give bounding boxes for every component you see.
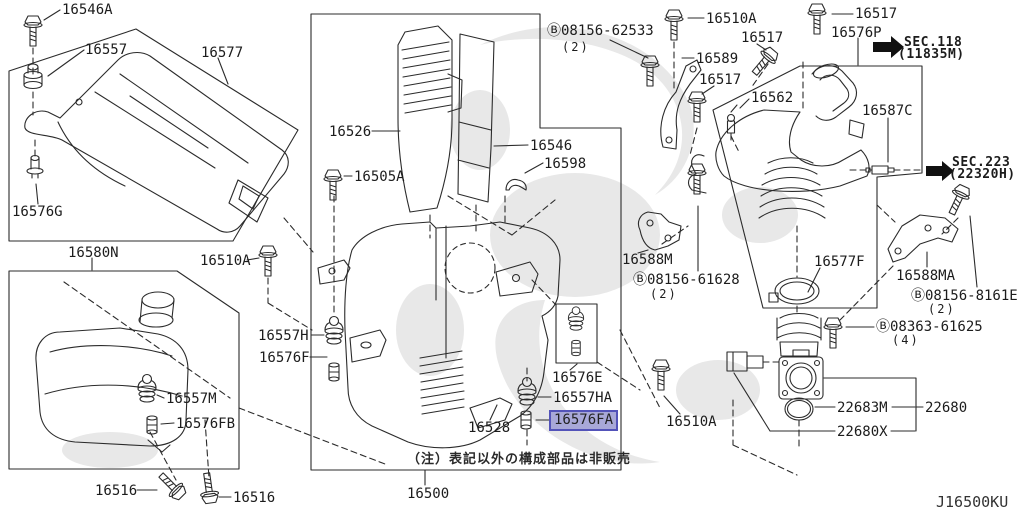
part-label-16576FA[interactable]: 16576FA <box>551 412 616 429</box>
part-label-16577F[interactable]: 16577F <box>814 255 865 270</box>
part-label-16546A[interactable]: 16546A <box>62 3 113 18</box>
part-label-16516-2[interactable]: 16516 <box>233 491 275 506</box>
part-label-16528[interactable]: 16528 <box>468 421 510 436</box>
part-label-16517-2[interactable]: 16517 <box>699 73 741 88</box>
part-label-16557H[interactable]: 16557H <box>258 329 309 344</box>
part-label-22680X[interactable]: 22680X <box>837 425 888 440</box>
qty-08156-61628: (2) <box>650 287 678 302</box>
part-label-16526[interactable]: 16526 <box>329 125 371 140</box>
part-label-16546[interactable]: 16546 <box>530 139 572 154</box>
part-label-16517-3[interactable]: 16517 <box>855 7 897 22</box>
part-label-16588M[interactable]: 16588M <box>622 253 673 268</box>
qty-08156-8161E: (2) <box>928 302 956 317</box>
part-label-16587C[interactable]: 16587C <box>862 104 913 119</box>
part-label-16562[interactable]: 16562 <box>751 91 793 106</box>
part-label-08156-8161E[interactable]: Ⓑ08156-8161E <box>911 289 1018 304</box>
part-label-16576F[interactable]: 16576F <box>259 351 310 366</box>
part-label-16500[interactable]: 16500 <box>407 487 449 502</box>
part-label-16510A-3[interactable]: 16510A <box>666 415 717 430</box>
part-label-16580N[interactable]: 16580N <box>68 246 119 261</box>
part-label-16576FB[interactable]: 16576FB <box>176 417 235 432</box>
part-label-22683M[interactable]: 22683M <box>837 401 888 416</box>
part-label-16505A[interactable]: 16505A <box>354 170 405 185</box>
part-label-16577[interactable]: 16577 <box>201 46 243 61</box>
part-label-16517-1[interactable]: 16517 <box>741 31 783 46</box>
part-label-16510A-2[interactable]: 16510A <box>706 12 757 27</box>
part-labels-layer: 16546A165571657716576G16580N16510A16557M… <box>0 0 1024 511</box>
sec-ref-223-sub: (22320H) <box>949 167 1016 182</box>
parts-diagram: 16546A165571657716576G16580N16510A16557M… <box>0 0 1024 511</box>
part-label-08156-62533[interactable]: Ⓑ08156-62533 <box>547 24 654 39</box>
part-label-16557[interactable]: 16557 <box>85 43 127 58</box>
part-label-22680[interactable]: 22680 <box>925 401 967 416</box>
part-label-16510A-1[interactable]: 16510A <box>200 254 251 269</box>
part-label-16598[interactable]: 16598 <box>544 157 586 172</box>
part-label-16557HA[interactable]: 16557HA <box>553 391 612 406</box>
part-label-16588MA[interactable]: 16588MA <box>896 269 955 284</box>
part-label-16576E[interactable]: 16576E <box>552 371 603 386</box>
part-label-16589[interactable]: 16589 <box>696 52 738 67</box>
qty-08363-61625: (4) <box>892 333 920 348</box>
diagram-code: J16500KU <box>936 495 1008 510</box>
qty-08156-62533: (2) <box>562 40 590 55</box>
sec-ref-118-sub: (11835M) <box>898 47 965 62</box>
part-label-16576G[interactable]: 16576G <box>12 205 63 220</box>
part-label-08156-61628[interactable]: Ⓑ08156-61628 <box>633 273 740 288</box>
part-label-16557M[interactable]: 16557M <box>166 392 217 407</box>
part-label-16576P[interactable]: 16576P <box>831 26 882 41</box>
note-jp: （注）表記以外の構成部品は非販売 <box>407 452 631 467</box>
part-label-16516-1[interactable]: 16516 <box>95 484 137 499</box>
